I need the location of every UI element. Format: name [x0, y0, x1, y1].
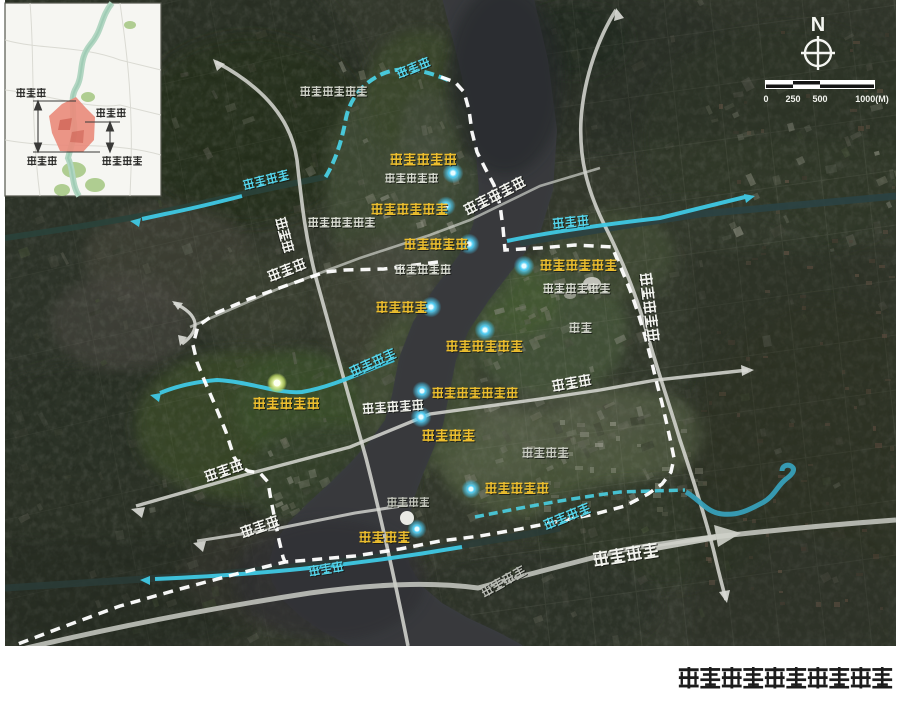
svg-text:1000(M): 1000(M)	[855, 94, 889, 104]
svg-text:250: 250	[785, 94, 800, 104]
svg-text:N: N	[811, 14, 825, 36]
svg-text:500: 500	[812, 94, 827, 104]
svg-text:0: 0	[763, 94, 768, 104]
